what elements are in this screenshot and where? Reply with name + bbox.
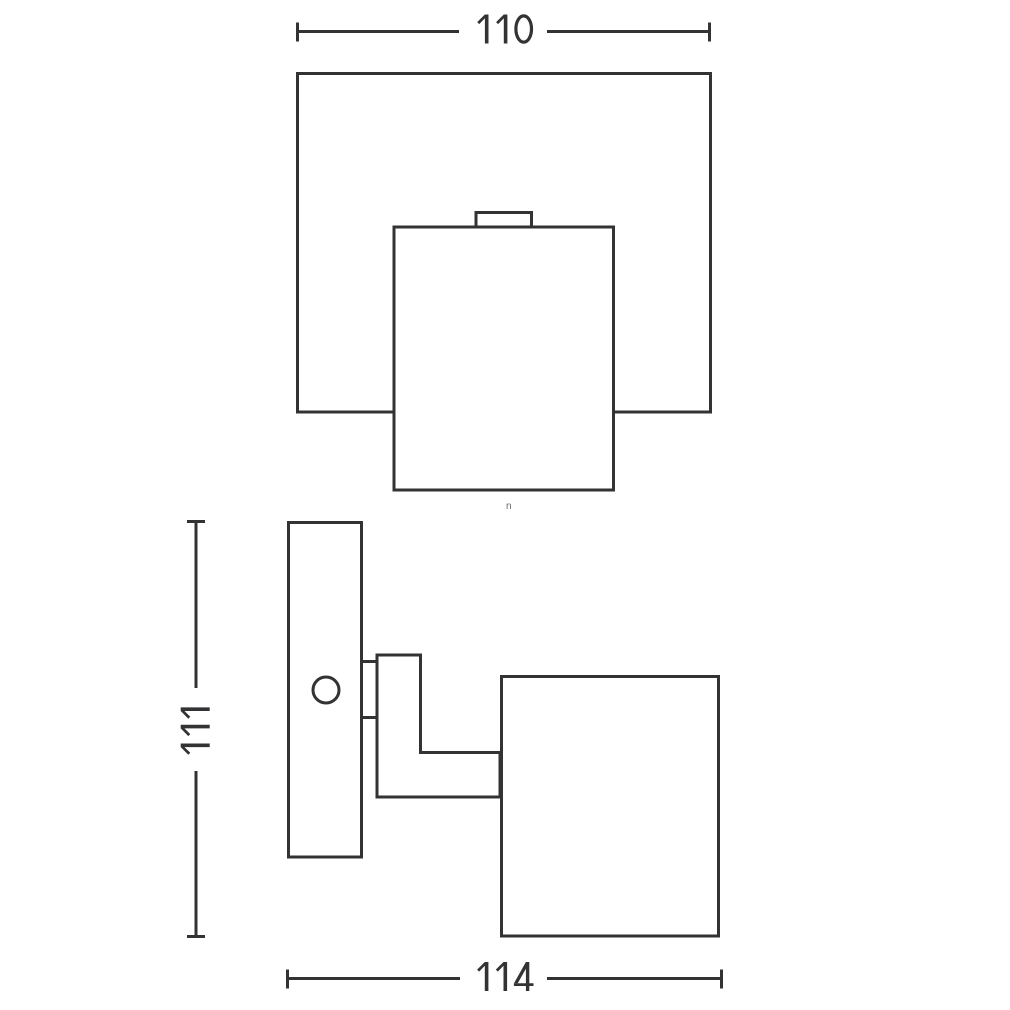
svg-text:n: n <box>506 501 512 512</box>
